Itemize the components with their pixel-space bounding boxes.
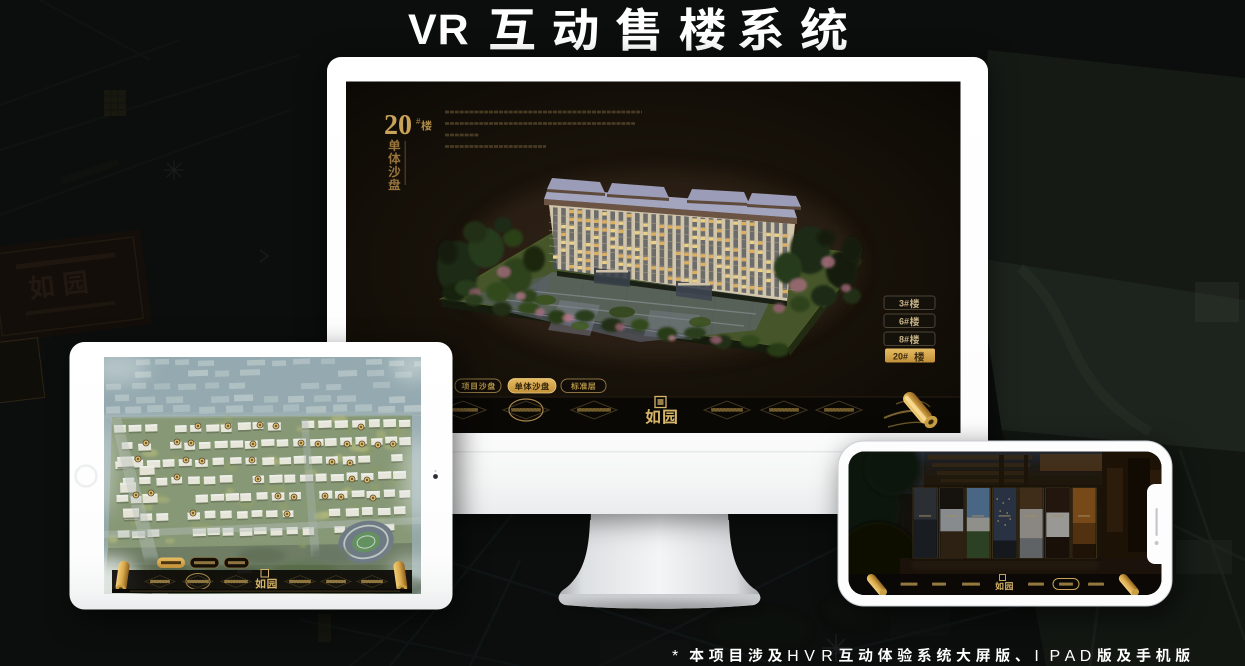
svg-text:VR: VR <box>408 6 470 54</box>
svg-text:D: D <box>1080 648 1092 665</box>
svg-text:I: I <box>1034 648 1038 665</box>
svg-text:*: * <box>672 648 678 665</box>
svg-text:3#: 3# <box>899 299 909 309</box>
svg-text:20: 20 <box>384 110 412 141</box>
svg-text:6#: 6# <box>899 317 909 327</box>
svg-text:A: A <box>1065 648 1076 665</box>
svg-text:R: R <box>821 648 833 665</box>
svg-text:H: H <box>787 648 799 665</box>
svg-text:8#: 8# <box>899 335 909 345</box>
svg-text:P: P <box>1050 648 1061 665</box>
svg-text:#: # <box>416 117 421 126</box>
svg-text:20#: 20# <box>893 352 908 362</box>
svg-text:V: V <box>804 648 815 665</box>
